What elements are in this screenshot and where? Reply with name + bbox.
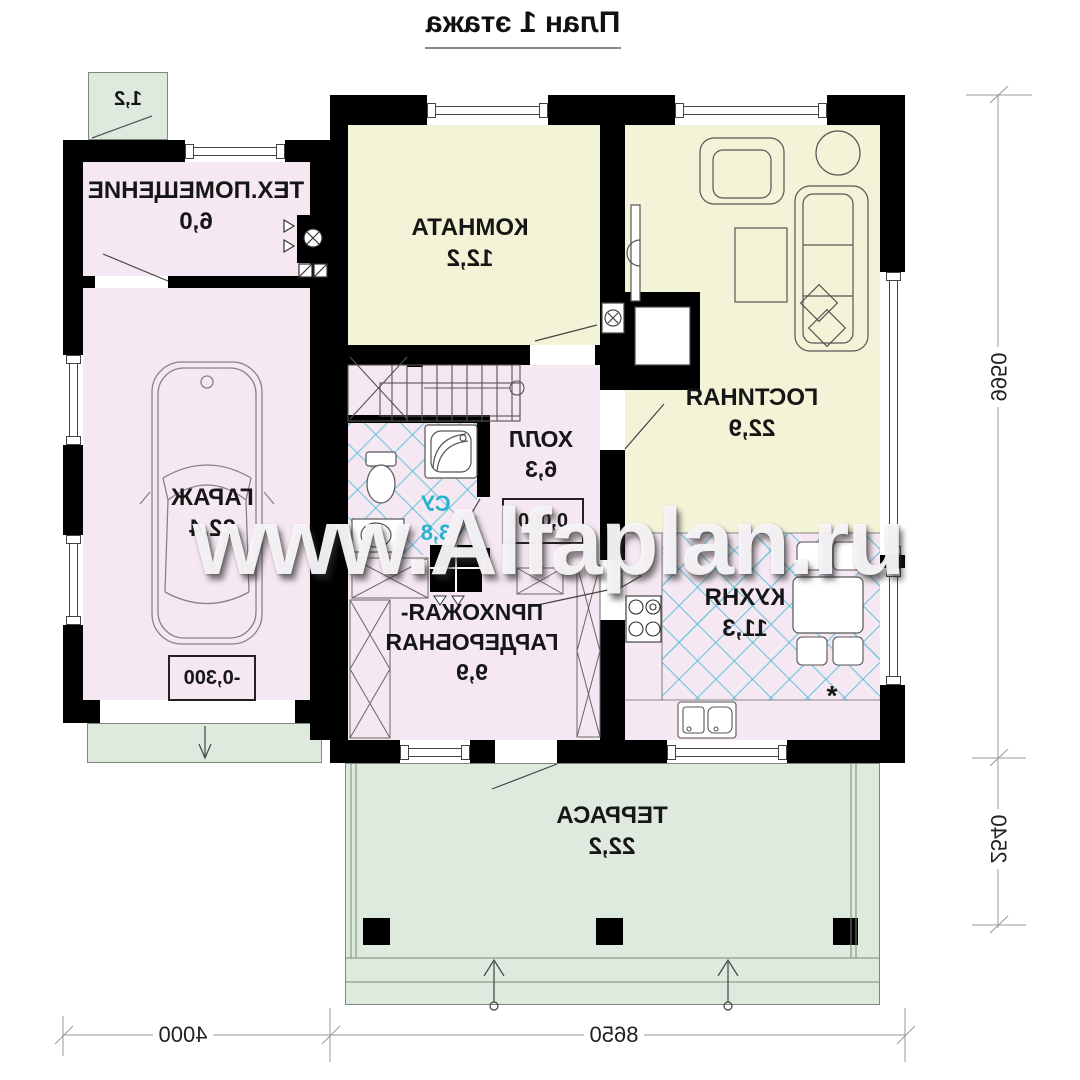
wall (330, 95, 427, 125)
window (185, 140, 285, 162)
room-label-hall: ХОЛЛ 6,3 (466, 425, 616, 485)
terrace-column (833, 918, 858, 945)
room-area: 22,2 (492, 831, 732, 862)
wall (557, 740, 667, 763)
room-area: 12,2 (350, 243, 590, 274)
room-area: 1,2 (96, 86, 160, 112)
room-name: ПРИХОЖАЯ- (352, 598, 592, 628)
window (667, 740, 787, 763)
room-label-hallway: ПРИХОЖАЯ- ГАРДЕРОБНАЯ 9,9 (352, 598, 592, 688)
room-name: ТЕХ.ПОМЕЩЕНИЕ (76, 175, 316, 206)
entrance-door-opening (495, 740, 557, 763)
wall (83, 276, 95, 288)
room-label-komnata: КОМНАТА 12,2 (350, 212, 590, 274)
watermark: www.Alfaplan.ru (118, 488, 978, 597)
fireplace-mass (625, 292, 700, 390)
window (427, 95, 548, 125)
room-area: 22,9 (632, 413, 872, 444)
floor-plan: План 1 этажа (0, 0, 1080, 1080)
room-name: ГОСТИНАЯ (632, 382, 872, 413)
dimension-right-top: 9950 (938, 317, 1058, 437)
dimension-bottom-right: 8650 (554, 1015, 674, 1055)
dimension-bottom-left: 4000 (123, 1015, 243, 1055)
window (675, 95, 827, 125)
room-label-porch: 1,2 (96, 86, 160, 112)
room-label-tech: ТЕХ.ПОМЕЩЕНИЕ 6,0 (76, 175, 316, 237)
wall (63, 445, 83, 535)
window (63, 535, 83, 625)
wall (600, 620, 625, 740)
garage-apron (87, 723, 322, 763)
wall (63, 700, 100, 723)
terrace-column (596, 918, 623, 945)
room-area: 6,3 (466, 455, 616, 485)
room-label-gostinaya: ГОСТИНАЯ 22,9 (632, 382, 872, 444)
wall (470, 740, 495, 763)
terrace-column (363, 918, 390, 945)
room-area: 9,9 (352, 658, 592, 688)
stair-post (407, 350, 423, 367)
kitchen-footnote-mark: * (812, 678, 852, 714)
wall (168, 276, 310, 288)
room-name: ГАРДЕРОБНАЯ (352, 628, 592, 658)
wall (880, 95, 905, 272)
room-area: 6,0 (76, 206, 316, 237)
room-name: ХОЛЛ (466, 425, 616, 455)
wall (348, 345, 530, 365)
page-title: План 1 этажа (373, 6, 673, 40)
room-label-terrace: ТЕРРАСА 22,2 (492, 800, 732, 862)
wall (330, 740, 400, 763)
wall (63, 140, 185, 162)
title-underline (425, 47, 621, 49)
dimension-right-bottom: 2540 (938, 779, 1058, 899)
garage-door-opening (100, 700, 295, 723)
room-name: КОМНАТА (350, 212, 590, 243)
window (400, 740, 470, 763)
level-mark-garage: -0,300 (168, 655, 256, 701)
wall (595, 345, 625, 365)
room-name: ТЕРРАСА (492, 800, 732, 831)
room-area: 11,3 (625, 613, 865, 644)
wall (348, 415, 477, 423)
window (63, 355, 83, 445)
wall (787, 740, 905, 763)
